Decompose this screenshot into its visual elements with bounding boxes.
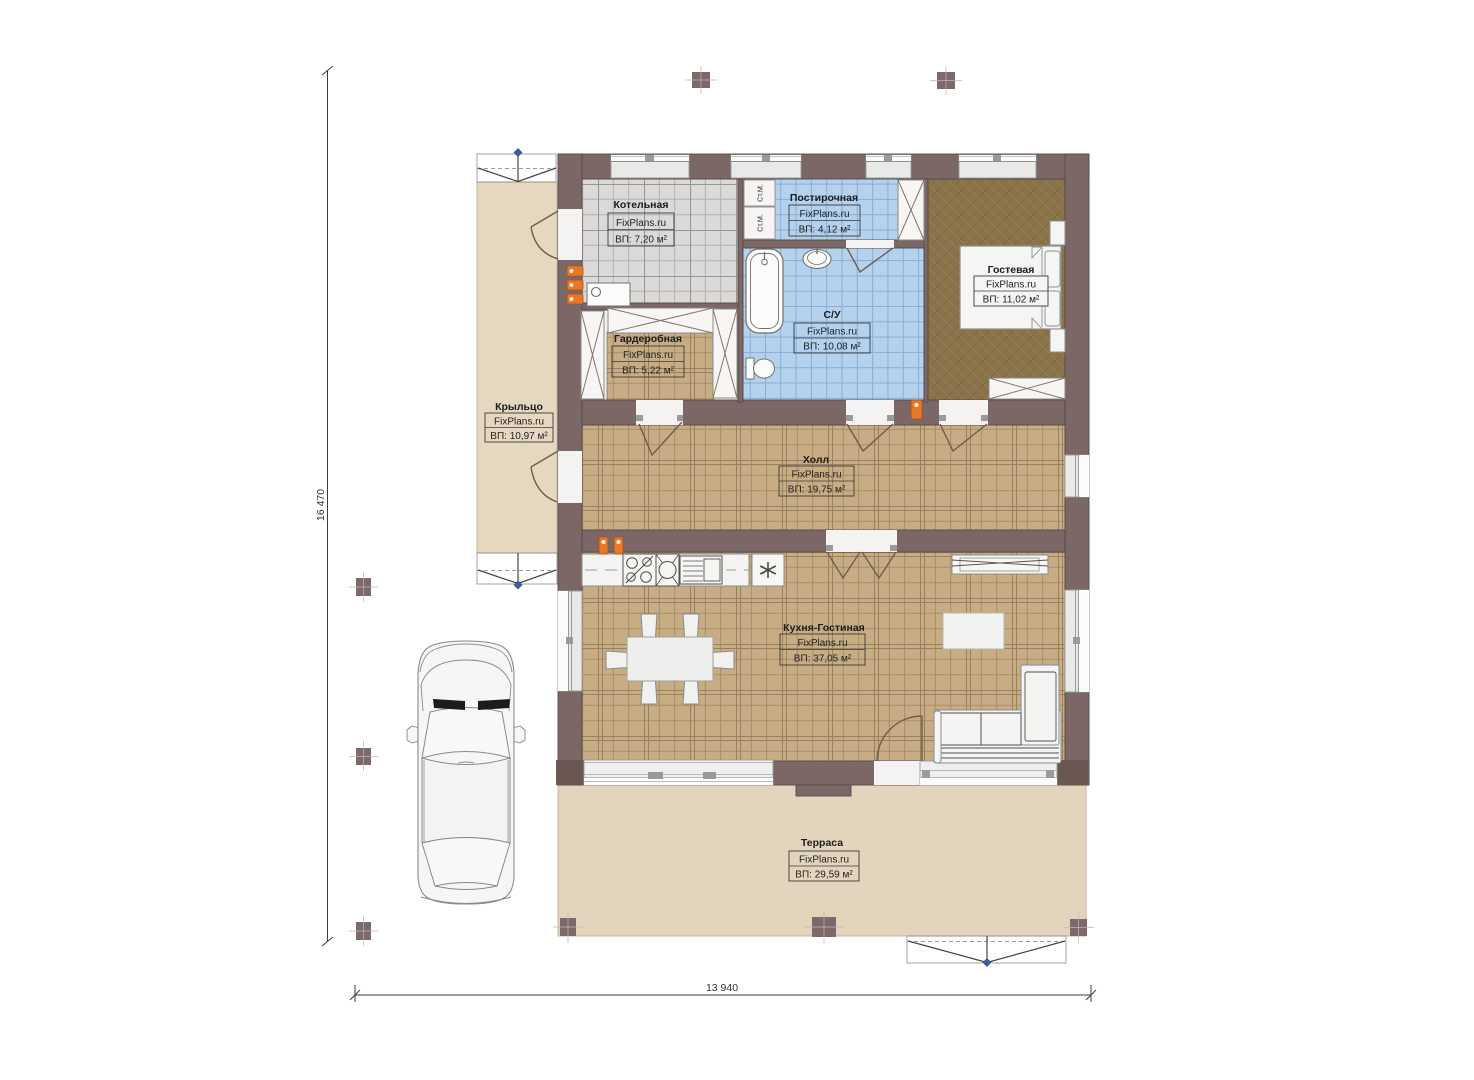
svg-text:Крыльцо: Крыльцо	[495, 401, 543, 413]
svg-text:Ст.М.: Ст.М.	[756, 184, 765, 202]
svg-text:Котельная: Котельная	[614, 199, 669, 211]
svg-text:13 940: 13 940	[706, 982, 738, 994]
svg-text:FixPlans.ru: FixPlans.ru	[799, 209, 849, 220]
svg-text:FixPlans.ru: FixPlans.ru	[616, 218, 666, 229]
svg-text:ВП: 5,22 м²: ВП: 5,22 м²	[622, 366, 675, 377]
svg-text:ВП: 7,20 м²: ВП: 7,20 м²	[615, 235, 668, 246]
svg-text:Гардеробная: Гардеробная	[614, 333, 682, 345]
svg-text:FixPlans.ru: FixPlans.ru	[494, 417, 544, 428]
svg-text:FixPlans.ru: FixPlans.ru	[623, 350, 673, 361]
svg-text:ВП: 37,05 м²: ВП: 37,05 м²	[794, 654, 852, 665]
svg-text:С/У: С/У	[823, 309, 841, 321]
svg-text:ВП: 10,08 м²: ВП: 10,08 м²	[803, 342, 861, 353]
svg-text:FixPlans.ru: FixPlans.ru	[986, 280, 1036, 291]
svg-text:ВП: 11,02 м²: ВП: 11,02 м²	[983, 295, 1040, 306]
svg-text:ВП: 10,97 м²: ВП: 10,97 м²	[490, 431, 548, 442]
svg-text:FixPlans.ru: FixPlans.ru	[791, 470, 841, 481]
svg-text:Кухня-Гостиная: Кухня-Гостиная	[783, 622, 865, 634]
svg-text:Холл: Холл	[803, 454, 829, 466]
svg-text:Гостевая: Гостевая	[988, 264, 1035, 276]
svg-text:FixPlans.ru: FixPlans.ru	[799, 855, 849, 866]
svg-text:FixPlans.ru: FixPlans.ru	[807, 327, 857, 338]
svg-text:ВП: 29,59 м²: ВП: 29,59 м²	[795, 870, 853, 881]
svg-text:Терраса: Терраса	[801, 837, 843, 849]
svg-text:Ст.М.: Ст.М.	[756, 214, 765, 232]
svg-text:ВП: 4,12 м²: ВП: 4,12 м²	[799, 225, 852, 236]
svg-text:FixPlans.ru: FixPlans.ru	[797, 638, 847, 649]
svg-text:16 470: 16 470	[315, 489, 327, 521]
svg-text:ВП: 19,75 м²: ВП: 19,75 м²	[788, 485, 846, 496]
svg-text:Постирочная: Постирочная	[790, 192, 858, 204]
